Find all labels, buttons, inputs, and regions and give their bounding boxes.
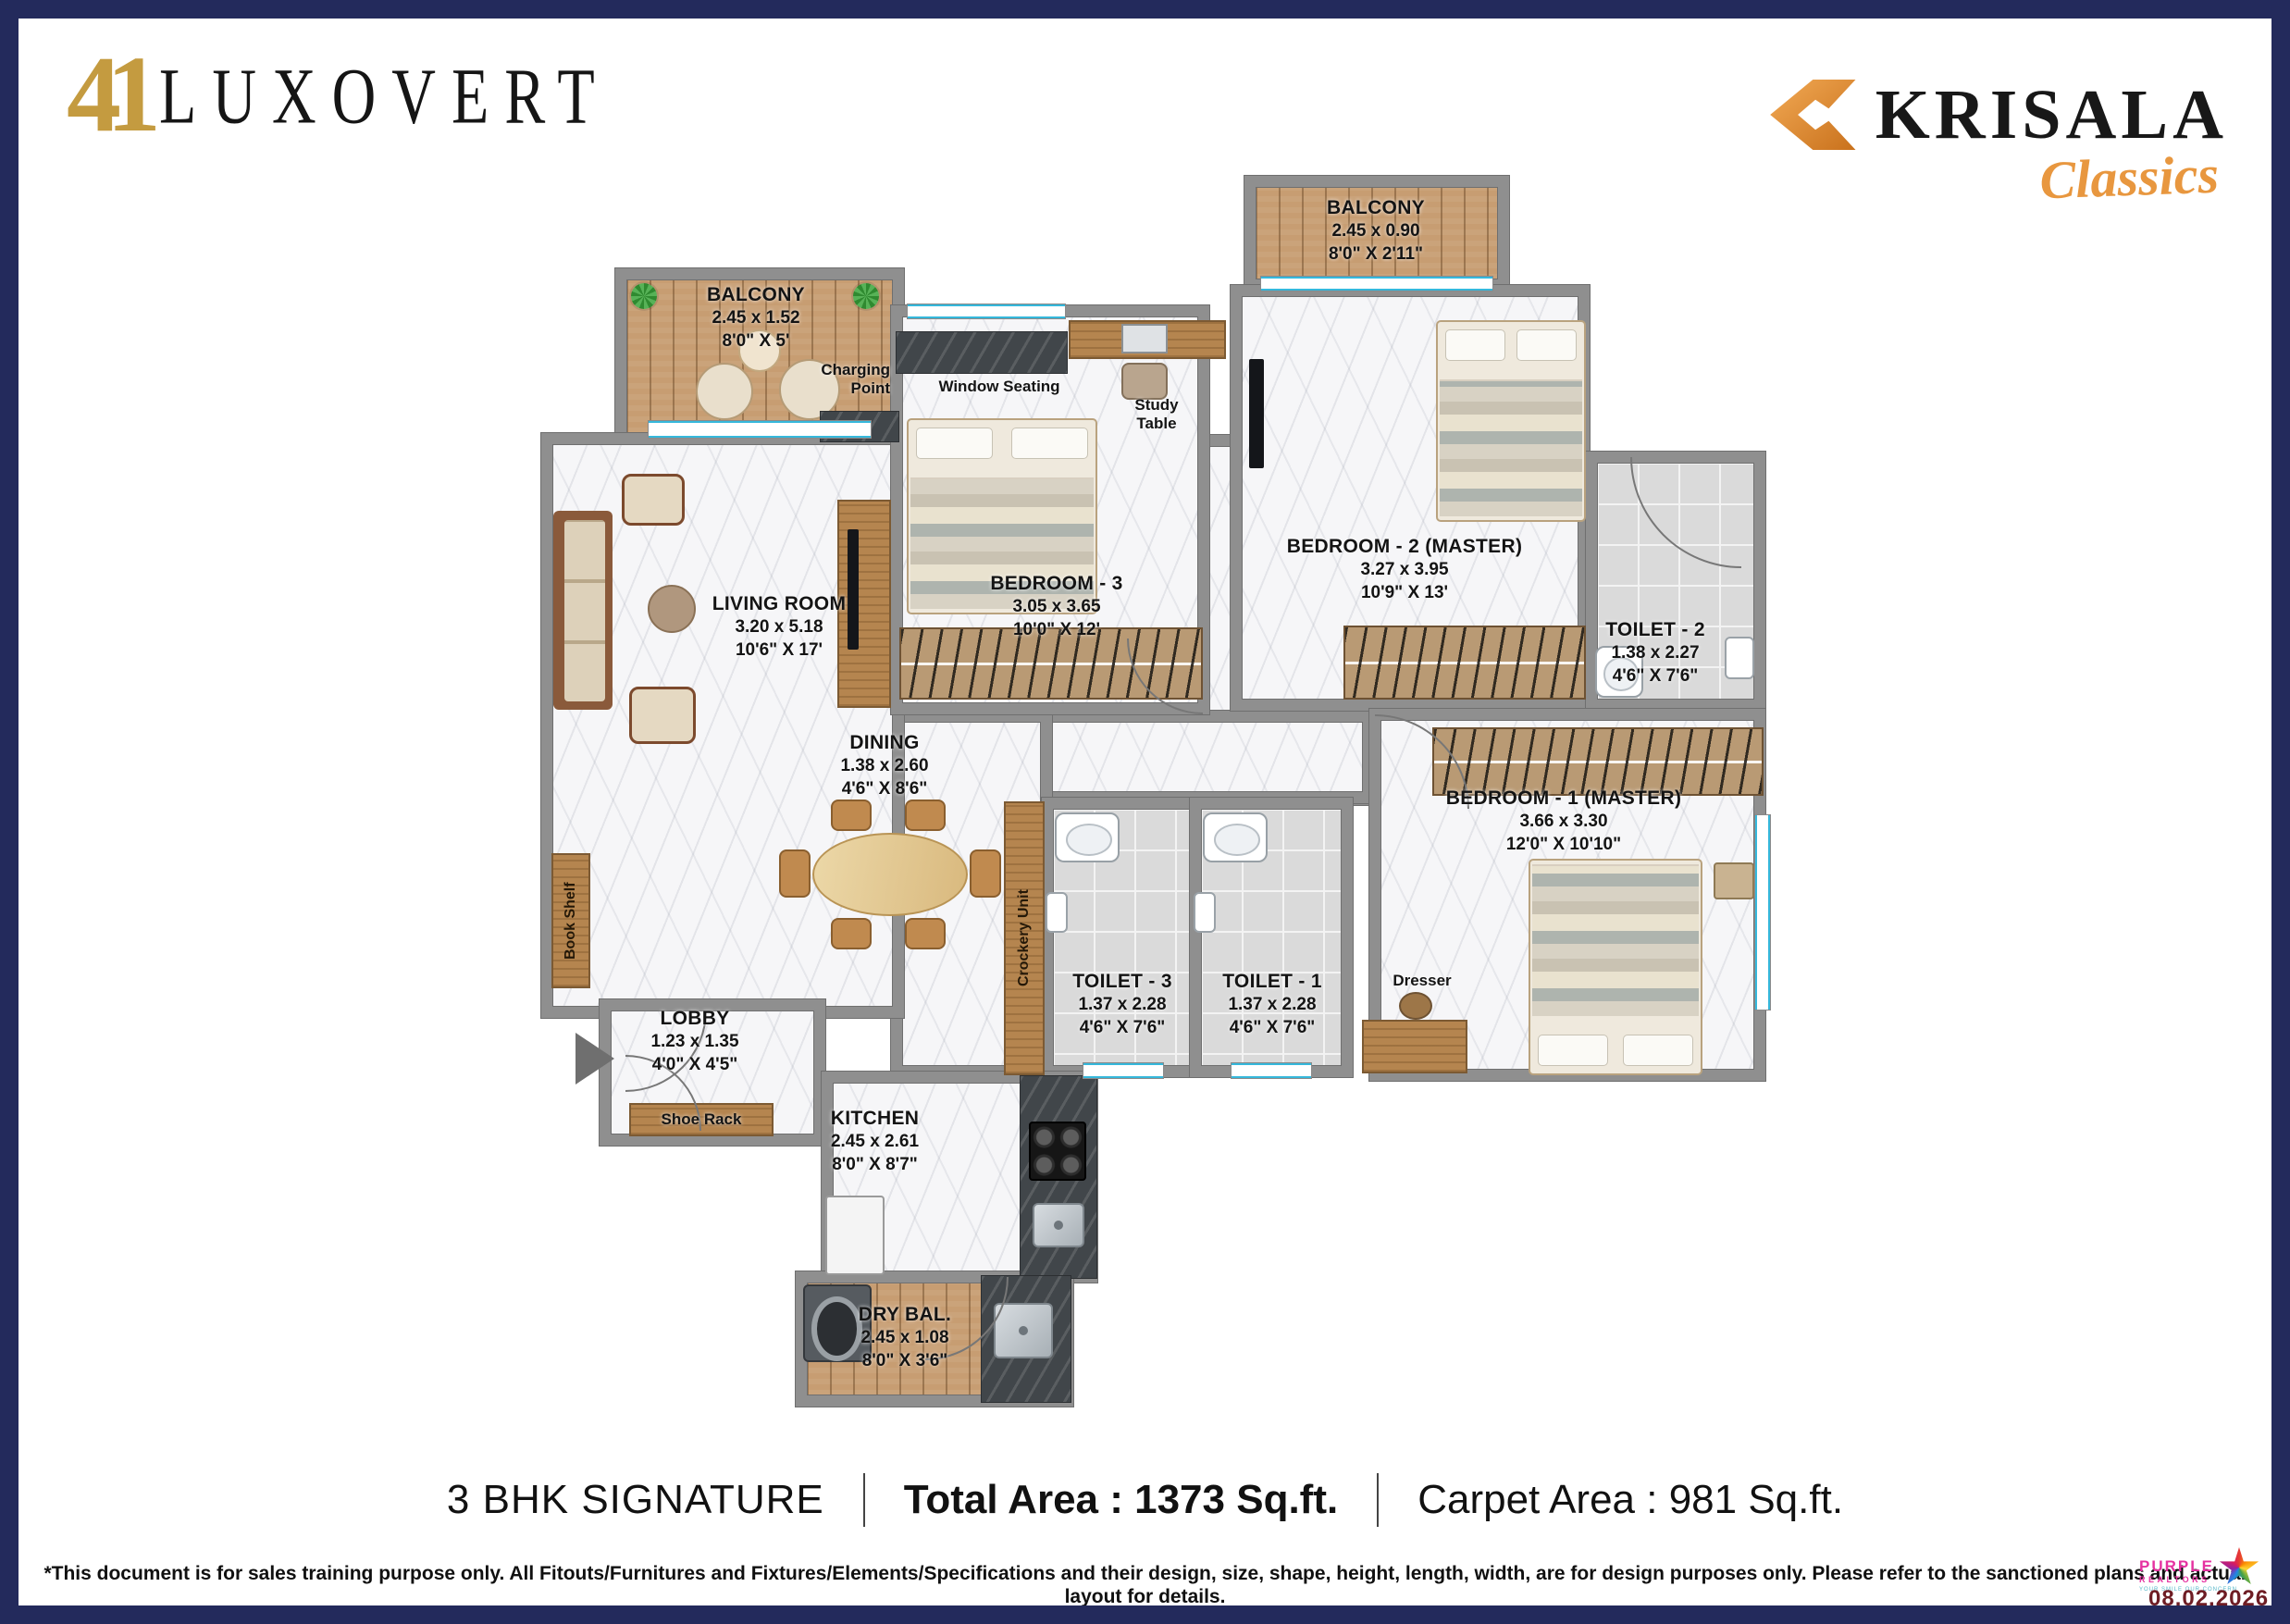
window-bedroom2-balcony bbox=[1260, 276, 1493, 291]
room-dim-ft: 8'0" X 8'7" bbox=[794, 1154, 956, 1177]
room-name: DRY BAL. bbox=[822, 1303, 988, 1327]
wardrobe-bedroom1 bbox=[1432, 727, 1764, 796]
sofa-cushions bbox=[564, 520, 605, 701]
room-dim-ft: 4'0" X 4'5" bbox=[616, 1054, 774, 1077]
room-name: BALCONY bbox=[1288, 196, 1464, 220]
room-dim-ft: 12'0" X 10'10" bbox=[1425, 834, 1702, 857]
room-name: BEDROOM - 3 bbox=[964, 572, 1149, 596]
room-label-bedroom3: BEDROOM - 3 3.05 x 3.65 10'0" X 12' bbox=[964, 572, 1149, 642]
krisala-brand-name: KRISALA bbox=[1875, 80, 2228, 150]
kitchen-sink bbox=[1033, 1203, 1084, 1247]
room-label-toilet3: TOILET - 3 1.37 x 2.28 4'6" X 7'6" bbox=[1053, 970, 1192, 1040]
room-dim-m: 2.45 x 0.90 bbox=[1288, 220, 1464, 243]
room-name: TOILET - 1 bbox=[1203, 970, 1342, 994]
balcony-chair bbox=[696, 363, 753, 420]
study-table-label: Study Table bbox=[1124, 396, 1189, 434]
room-dim-m: 3.05 x 3.65 bbox=[964, 596, 1149, 619]
room-dim-ft: 4'6" X 7'6" bbox=[1053, 1017, 1192, 1040]
dresser-label: Dresser bbox=[1380, 972, 1464, 990]
window-seating-label: Window Seating bbox=[925, 378, 1073, 396]
room-dim-m: 2.45 x 1.52 bbox=[677, 307, 835, 330]
dining-table bbox=[812, 833, 968, 916]
shoe-rack-label: Shoe Rack bbox=[629, 1110, 774, 1129]
room-dim-m: 3.20 x 5.18 bbox=[696, 616, 862, 639]
dining-chair bbox=[779, 849, 811, 898]
bed-bedroom1 bbox=[1529, 859, 1702, 1075]
room-dim-ft: 4'6" X 7'6" bbox=[1203, 1017, 1342, 1040]
room-label-dry-balcony: DRY BAL. 2.45 x 1.08 8'0" X 3'6" bbox=[822, 1303, 988, 1373]
room-label-bedroom2: BEDROOM - 2 (MASTER) 3.27 x 3.95 10'9" X… bbox=[1284, 535, 1525, 605]
luxovert-logo-number: 41 bbox=[67, 48, 146, 141]
room-dim-ft: 4'6" X 7'6" bbox=[1567, 665, 1743, 688]
charging-point-label: Charging Point bbox=[798, 361, 890, 399]
dresser-stool bbox=[1399, 992, 1432, 1020]
realtor-name: PURPLE bbox=[2139, 1558, 2237, 1574]
disclaimer-text: *This document is for sales training pur… bbox=[28, 1562, 2262, 1608]
armchair bbox=[629, 687, 696, 744]
crockery-unit-label: Crockery Unit bbox=[1004, 801, 1045, 1075]
krisala-brand-sub: Classics bbox=[1764, 147, 2229, 217]
wardrobe-bedroom2 bbox=[1343, 626, 1586, 700]
dining-chair bbox=[970, 849, 1001, 898]
room-name: LIVING ROOM bbox=[696, 592, 862, 616]
room-dim-m: 1.23 x 1.35 bbox=[616, 1031, 774, 1054]
divider bbox=[863, 1473, 865, 1527]
room-dim-m: 1.37 x 2.28 bbox=[1203, 994, 1342, 1017]
dining-chair bbox=[831, 918, 872, 949]
room-label-dining: DINING 1.38 x 2.60 4'6" X 8'6" bbox=[801, 731, 968, 801]
window-toilet1 bbox=[1231, 1062, 1312, 1079]
luxovert-logo: 41 LUXOVERT bbox=[67, 48, 611, 141]
room-dim-m: 1.37 x 2.28 bbox=[1053, 994, 1192, 1017]
room-dim-m: 1.38 x 2.27 bbox=[1567, 642, 1743, 665]
room-label-kitchen: KITCHEN 2.45 x 2.61 8'0" X 8'7" bbox=[794, 1107, 956, 1177]
room-label-bedroom1: BEDROOM - 1 (MASTER) 3.66 x 3.30 12'0" X… bbox=[1425, 787, 1702, 857]
room-dim-ft: 10'0" X 12' bbox=[964, 619, 1149, 642]
room-dim-ft: 4'6" X 8'6" bbox=[801, 778, 968, 801]
wash-basin bbox=[1194, 892, 1216, 933]
window-bedroom3 bbox=[907, 304, 1066, 319]
room-dim-ft: 8'0" X 2'11" bbox=[1288, 243, 1464, 267]
room-name: TOILET - 2 bbox=[1567, 618, 1743, 642]
book-shelf-label: Book Shelf bbox=[551, 853, 590, 988]
armchair bbox=[622, 474, 685, 526]
realtor-name-2: REALTORS bbox=[2139, 1576, 2237, 1584]
dining-chair bbox=[905, 918, 946, 949]
divider bbox=[1377, 1473, 1379, 1527]
krisala-arrow-icon bbox=[1765, 80, 1861, 150]
laptop-icon bbox=[1121, 324, 1168, 353]
carpet-area: Carpet Area : 981 Sq.ft. bbox=[1417, 1480, 1843, 1520]
room-dim-m: 2.45 x 2.61 bbox=[794, 1131, 956, 1154]
wash-basin bbox=[1046, 892, 1068, 933]
bedside-table bbox=[1714, 862, 1754, 899]
total-area: Total Area : 1373 Sq.ft. bbox=[904, 1480, 1338, 1520]
room-dim-m: 3.66 x 3.30 bbox=[1425, 811, 1702, 834]
stove-icon bbox=[1029, 1122, 1086, 1181]
room-name: BALCONY bbox=[677, 283, 835, 307]
window-bedroom1 bbox=[1754, 814, 1771, 1010]
room-label-toilet1: TOILET - 1 1.37 x 2.28 4'6" X 7'6" bbox=[1203, 970, 1342, 1040]
room-label-toilet2: TOILET - 2 1.38 x 2.27 4'6" X 7'6" bbox=[1567, 618, 1743, 688]
room-name: DINING bbox=[801, 731, 968, 755]
window-toilet3 bbox=[1083, 1062, 1164, 1079]
date-stamp: 08.02.2026 bbox=[2148, 1588, 2269, 1610]
corridor-horizontal bbox=[1041, 711, 1374, 803]
dining-chair bbox=[831, 800, 872, 831]
toilet-bowl bbox=[1055, 812, 1120, 862]
bed-bedroom2 bbox=[1436, 320, 1586, 522]
coffee-table bbox=[648, 585, 696, 633]
dresser-table bbox=[1362, 1020, 1467, 1073]
luxovert-logo-name: LUXOVERT bbox=[159, 57, 611, 137]
krisala-logo: KRISALA Classics bbox=[1765, 80, 2228, 209]
room-dim-ft: 8'0" X 3'6" bbox=[822, 1350, 988, 1373]
room-name: KITCHEN bbox=[794, 1107, 956, 1131]
room-dim-m: 3.27 x 3.95 bbox=[1284, 559, 1525, 582]
room-dim-ft: 10'6" X 17' bbox=[696, 639, 862, 663]
window-living-balcony bbox=[648, 420, 872, 439]
fridge-icon bbox=[825, 1196, 885, 1275]
floor-plan-page: 41 LUXOVERT KRISALA Classics bbox=[0, 0, 2290, 1624]
room-name: BEDROOM - 2 (MASTER) bbox=[1284, 535, 1525, 559]
room-label-balcony-top: BALCONY 2.45 x 0.90 8'0" X 2'11" bbox=[1288, 196, 1464, 267]
plan-type: 3 BHK SIGNATURE bbox=[447, 1480, 824, 1520]
toilet-bowl bbox=[1203, 812, 1268, 862]
study-chair bbox=[1121, 363, 1168, 400]
window-seating-slab bbox=[896, 331, 1068, 374]
tv-icon bbox=[1249, 359, 1264, 468]
room-name: LOBBY bbox=[616, 1007, 774, 1031]
room-label-living: LIVING ROOM 3.20 x 5.18 10'6" X 17' bbox=[696, 592, 862, 663]
room-label-lobby: LOBBY 1.23 x 1.35 4'0" X 4'5" bbox=[616, 1007, 774, 1077]
room-name: TOILET - 3 bbox=[1053, 970, 1192, 994]
entrance-arrow-icon bbox=[576, 1033, 614, 1085]
dry-balcony-sink bbox=[994, 1303, 1053, 1358]
dining-chair bbox=[905, 800, 946, 831]
summary-bar: 3 BHK SIGNATURE Total Area : 1373 Sq.ft.… bbox=[0, 1473, 2290, 1527]
room-label-balcony-left: BALCONY 2.45 x 1.52 8'0" X 5' bbox=[677, 283, 835, 353]
room-dim-m: 1.38 x 2.60 bbox=[801, 755, 968, 778]
room-name: BEDROOM - 1 (MASTER) bbox=[1425, 787, 1702, 811]
room-dim-ft: 8'0" X 5' bbox=[677, 330, 835, 353]
plant-icon bbox=[631, 283, 657, 309]
plant-icon bbox=[853, 283, 879, 309]
room-dim-ft: 10'9" X 13' bbox=[1284, 582, 1525, 605]
room-dim-m: 2.45 x 1.08 bbox=[822, 1327, 988, 1350]
